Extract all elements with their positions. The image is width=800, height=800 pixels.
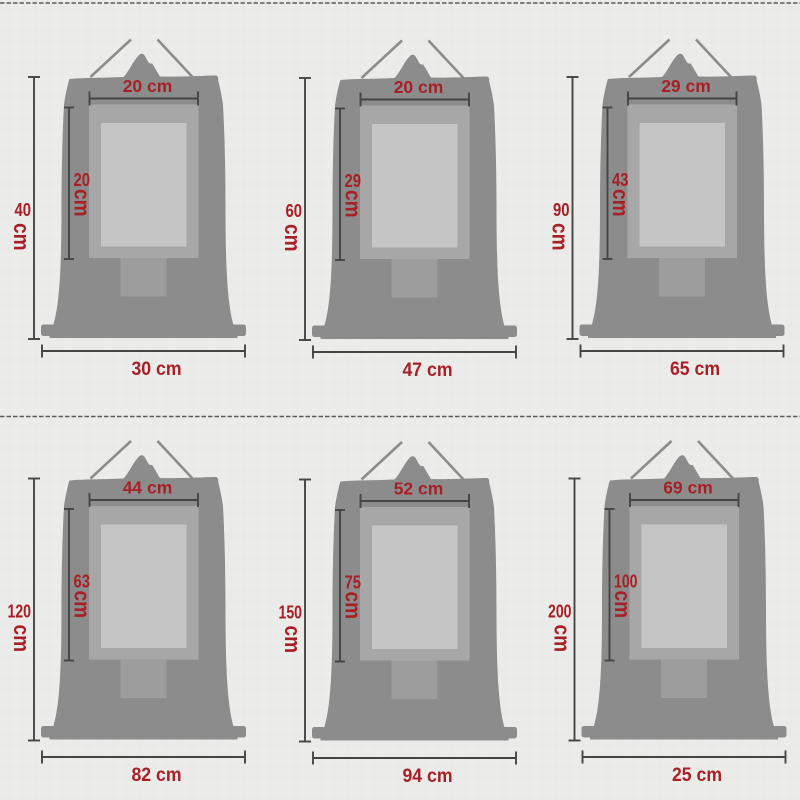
svg-text:120: 120 — [8, 602, 32, 622]
svg-text:29 cm: 29 cm — [661, 76, 711, 96]
svg-text:cm: cm — [280, 224, 305, 252]
svg-text:65 cm: 65 cm — [670, 358, 720, 380]
svg-text:25 cm: 25 cm — [672, 764, 722, 786]
svg-text:43: 43 — [612, 170, 629, 190]
svg-text:cm: cm — [9, 625, 34, 653]
svg-text:20: 20 — [74, 170, 91, 190]
svg-text:75: 75 — [345, 573, 362, 593]
svg-text:44 cm: 44 cm — [123, 478, 173, 498]
svg-text:94 cm: 94 cm — [403, 765, 453, 787]
svg-text:69 cm: 69 cm — [663, 478, 713, 498]
svg-text:cm: cm — [610, 591, 635, 619]
svg-text:52 cm: 52 cm — [394, 479, 444, 499]
svg-text:63: 63 — [74, 572, 91, 592]
svg-text:30 cm: 30 cm — [132, 358, 182, 380]
svg-text:150: 150 — [279, 603, 303, 623]
svg-text:20 cm: 20 cm — [123, 76, 173, 96]
svg-text:200: 200 — [548, 602, 572, 622]
svg-text:40: 40 — [15, 200, 32, 220]
svg-text:90: 90 — [553, 200, 570, 220]
svg-text:cm: cm — [341, 190, 366, 218]
svg-text:cm: cm — [70, 189, 95, 217]
svg-text:82 cm: 82 cm — [132, 764, 182, 786]
svg-text:cm: cm — [70, 591, 95, 619]
svg-text:60: 60 — [286, 201, 303, 221]
svg-text:47 cm: 47 cm — [403, 359, 453, 381]
svg-text:20 cm: 20 cm — [394, 77, 444, 97]
svg-text:cm: cm — [550, 625, 575, 653]
svg-text:29: 29 — [345, 171, 362, 191]
svg-text:cm: cm — [608, 189, 633, 217]
svg-text:cm: cm — [280, 626, 305, 654]
svg-text:cm: cm — [9, 223, 34, 251]
svg-text:cm: cm — [548, 223, 573, 251]
svg-text:100: 100 — [614, 572, 638, 592]
svg-text:cm: cm — [341, 592, 366, 620]
